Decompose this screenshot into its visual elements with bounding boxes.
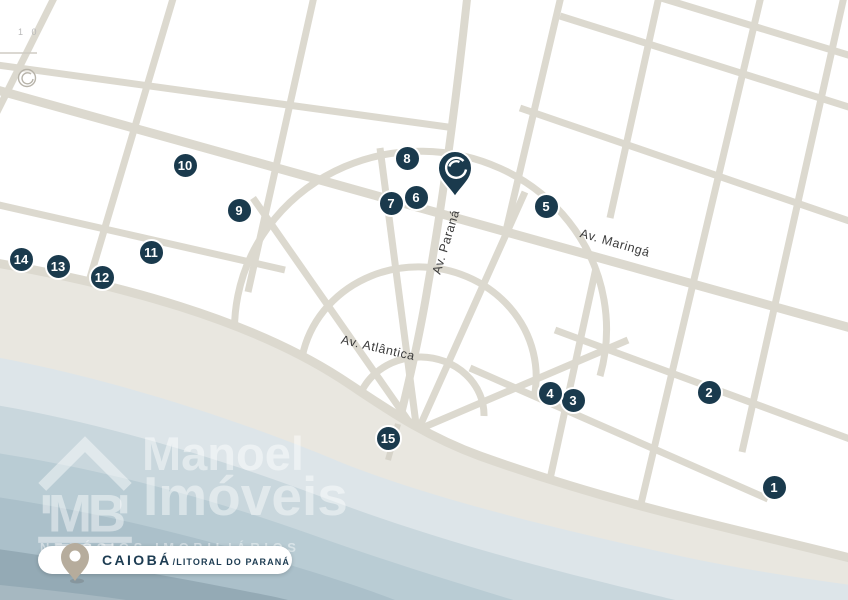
map-marker-11[interactable]: 11 [138,239,165,266]
roundabout-logo-mark [19,70,36,87]
location-badge: CAIOBÁ /LITORAL DO PARANÁ [38,546,292,574]
logo-monogram: MB [48,485,124,544]
map-marker-8[interactable]: 8 [394,145,421,172]
map-marker-7[interactable]: 7 [378,190,405,217]
map-marker-9[interactable]: 9 [226,197,253,224]
map-marker-13[interactable]: 13 [45,253,72,280]
map-marker-2[interactable]: 2 [696,379,723,406]
badge-city-label: CAIOBÁ [102,552,172,568]
map-marker-1[interactable]: 1 [761,474,788,501]
map-marker-6[interactable]: 6 [403,184,430,211]
map-marker-15[interactable]: 15 [375,425,402,452]
map-marker-5[interactable]: 5 [533,193,560,220]
map-marker-3[interactable]: 3 [560,387,587,414]
brand-name-line2: Imóveis [143,469,348,524]
corner-ruler-text: 1 0 [18,27,40,37]
map-marker-12[interactable]: 12 [89,264,116,291]
badge-region-label: /LITORAL DO PARANÁ [173,554,290,567]
badge-pin-icon [54,537,96,585]
map-marker-4[interactable]: 4 [537,380,564,407]
map-marker-14[interactable]: 14 [8,246,35,273]
map-canvas: 1 0 Av. Paraná Av. Maringá Av. Atlântica… [0,0,848,600]
house-logo-icon: MB [34,434,136,548]
map-marker-10[interactable]: 10 [172,152,199,179]
